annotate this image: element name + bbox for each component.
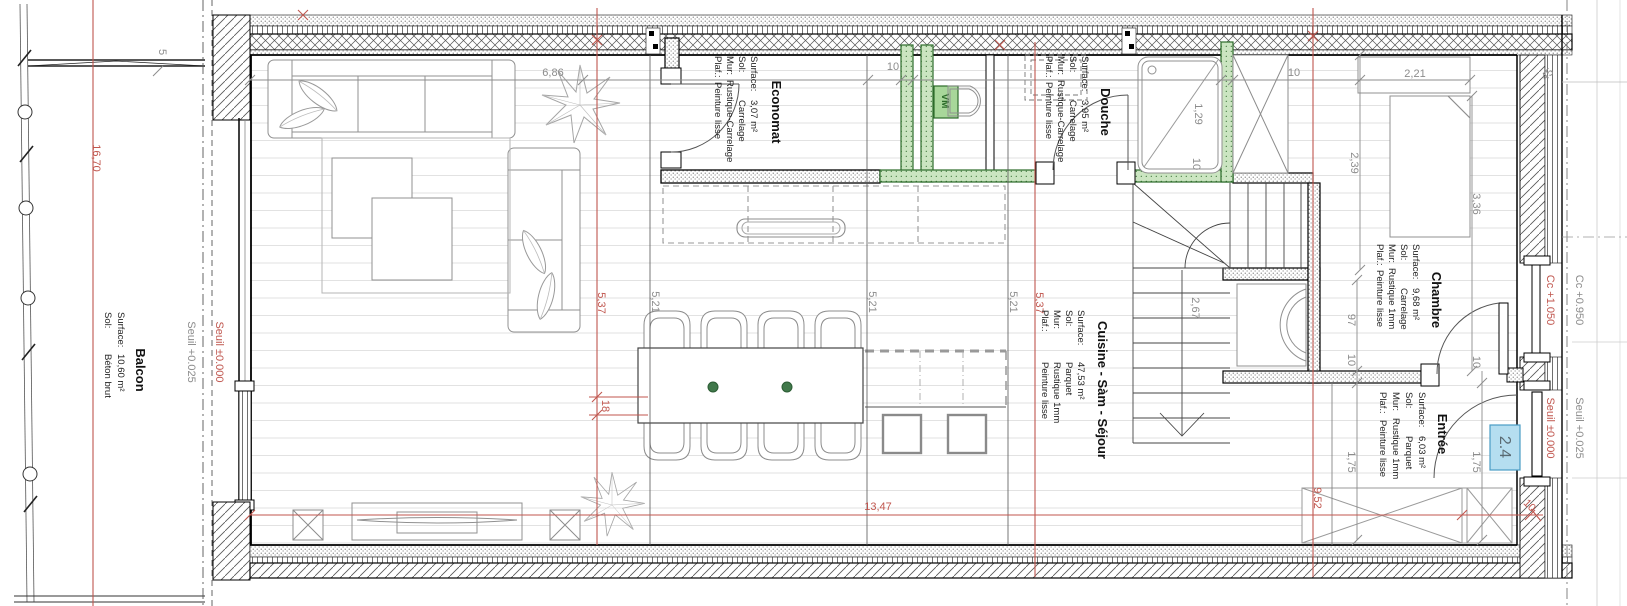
dim-10c: 10 [1345, 354, 1357, 366]
dim-521-3: 5,21 [1007, 291, 1019, 312]
dim-686: 6,86 [542, 67, 563, 79]
svg-text:Sol:: Sol: [1403, 392, 1414, 408]
svg-text:Rustique 1mm: Rustique 1mm [1051, 362, 1062, 423]
svg-text:Sol:: Sol: [736, 56, 747, 72]
sofa-large [268, 60, 515, 138]
dim-336: 3,36 [1470, 193, 1482, 214]
dim-521-1: 5,21 [649, 291, 661, 312]
dim-267: 2,67 [1189, 297, 1201, 318]
balcony [14, 0, 212, 606]
svg-text:Carrelage: Carrelage [736, 100, 747, 142]
seuil-right-red: Seuil ±0.000 [1544, 397, 1556, 458]
balcony-railing-ticks [18, 50, 37, 512]
svg-text:3,95 m²: 3,95 m² [1079, 100, 1090, 132]
shower-tray [1138, 57, 1222, 173]
svg-text:Cuisine - Sàm - Séjour: Cuisine - Sàm - Séjour [1095, 321, 1110, 459]
seuil-right-gray: Seuil +0.025 [1573, 397, 1585, 458]
dim-10-tray: 10 [1190, 158, 1202, 170]
dim-10a: 10 [887, 61, 899, 73]
svg-text:Surface:: Surface: [1410, 244, 1421, 279]
douche-partition [986, 55, 994, 172]
svg-text:Plaf.:: Plaf.: [1039, 310, 1050, 332]
door-tag-label: 2.4 [1496, 436, 1513, 458]
dim-97: 97 [1345, 314, 1357, 326]
dim-10d: 10 [1470, 356, 1482, 368]
svg-text:Rustique-Carrelage: Rustique-Carrelage [724, 80, 735, 162]
door-tag: 2.4 [1490, 425, 1520, 470]
dim-5: 5 [156, 49, 168, 55]
duct-shaft [1233, 55, 1288, 173]
svg-text:Rustique-Carrelage: Rustique-Carrelage [1055, 80, 1066, 162]
svg-text:Entrée: Entrée [1435, 414, 1450, 454]
svg-text:Sol:: Sol: [102, 312, 113, 328]
dim-521-2: 5,21 [866, 291, 878, 312]
floor-plan-page: VM 2.4 [0, 0, 1627, 606]
dim-1670: 16,70 [90, 144, 102, 172]
svg-text:3,07 m²: 3,07 m² [748, 100, 759, 132]
svg-text:Mur:: Mur: [1051, 310, 1062, 329]
bottom-wall [250, 545, 1572, 578]
dim-175-1: 1,75 [1345, 451, 1357, 472]
svg-text:Balcon: Balcon [133, 348, 148, 391]
entree-wall [1223, 371, 1421, 383]
svg-text:Mur:: Mur: [1055, 56, 1066, 75]
svg-text:Rustique 1mm: Rustique 1mm [1386, 268, 1397, 329]
svg-text:9,68 m²: 9,68 m² [1410, 288, 1421, 320]
svg-text:Béton brut: Béton brut [102, 354, 113, 398]
svg-text:Carrelage: Carrelage [1067, 100, 1078, 142]
svg-text:Plaf.:: Plaf.: [1377, 392, 1388, 414]
svg-text:Douche: Douche [1098, 88, 1113, 136]
svg-text:Sol:: Sol: [1067, 56, 1078, 72]
dim-221: 2,21 [1404, 68, 1425, 80]
svg-text:10,60 m²: 10,60 m² [115, 354, 126, 392]
balcony-door-frame [239, 390, 251, 502]
chambre-wall-left [1308, 183, 1320, 383]
entrance-door-leaf [1532, 392, 1542, 476]
cc-red: Cc +1.050 [1544, 275, 1556, 325]
svg-text:Chambre: Chambre [1429, 272, 1444, 328]
svg-text:Rustique 1mm: Rustique 1mm [1390, 418, 1401, 479]
svg-text:Peinture lisse: Peinture lisse [712, 82, 723, 139]
dim-175-2: 1,75 [1470, 451, 1482, 472]
floor-plan-svg: VM 2.4 [0, 0, 1627, 606]
svg-text:Mur:: Mur: [1390, 392, 1401, 411]
svg-text:Mur:: Mur: [724, 56, 735, 75]
stool [883, 415, 921, 453]
door-hinge-block [1507, 368, 1523, 382]
svg-text:Mur:: Mur: [1386, 244, 1397, 263]
balcony-top-edge [28, 60, 205, 66]
site-lines-right [1562, 0, 1627, 606]
chambre-door-leaf [1499, 303, 1508, 374]
svg-text:Peinture lisse: Peinture lisse [1043, 82, 1054, 139]
svg-text:Surface:: Surface: [748, 56, 759, 91]
svg-text:Surface:: Surface: [1416, 392, 1427, 427]
svg-text:Plaf.:: Plaf.: [1374, 244, 1385, 266]
svg-text:Peinture lisse: Peinture lisse [1039, 362, 1050, 419]
svg-text:Parquet: Parquet [1403, 436, 1414, 470]
svg-text:Carrelage: Carrelage [1398, 288, 1409, 330]
svg-text:47,53 m²: 47,53 m² [1075, 362, 1086, 400]
svg-text:Sol:: Sol: [1398, 244, 1409, 260]
svg-text:Economat: Economat [769, 81, 784, 145]
svg-text:Parquet: Parquet [1063, 362, 1074, 396]
dim-18: 18 [599, 400, 611, 412]
svg-text:Sol:: Sol: [1063, 310, 1074, 326]
seuil-left-red: Seuil ±0.000 [213, 321, 225, 382]
room-label-balcon: Balcon Surface: 10,60 m² Sol: Béton brut [102, 312, 148, 398]
dim-129: 1,29 [1192, 103, 1204, 124]
table-lamp [708, 382, 718, 392]
cc-gray: Cc +0.950 [1573, 275, 1585, 325]
stool [948, 415, 986, 453]
svg-text:Surface:: Surface: [1075, 310, 1086, 345]
dim-239: 2,39 [1348, 152, 1360, 173]
sofa-small [508, 148, 580, 332]
corner-bottom-left [213, 502, 250, 580]
svg-text:Surface:: Surface: [1079, 56, 1090, 91]
svg-text:Peinture lisse: Peinture lisse [1377, 420, 1388, 477]
svg-text:6,03 m²: 6,03 m² [1416, 436, 1427, 468]
economat-wall [661, 170, 880, 183]
svg-text:Surface:: Surface: [115, 312, 126, 347]
balcony-slab-edge [14, 596, 205, 602]
svg-text:Peinture lisse: Peinture lisse [1374, 270, 1385, 327]
seuil-left-gray: Seuil +0.025 [185, 321, 197, 382]
left-wall-window [235, 55, 254, 545]
property-lines [203, 0, 212, 606]
dim-537-1: 5,37 [595, 292, 607, 313]
wc-wall-top [1223, 268, 1320, 280]
dim-1347: 13,47 [864, 501, 892, 513]
washbasin [1237, 284, 1306, 366]
dim-952: 9,52 [1311, 487, 1323, 508]
svg-text:Plaf.:: Plaf.: [712, 56, 723, 78]
dim-10b: 10 [1288, 67, 1300, 79]
svg-text:Plaf.:: Plaf.: [1043, 56, 1054, 78]
corner-top-left [213, 15, 250, 120]
table-lamp [782, 382, 792, 392]
